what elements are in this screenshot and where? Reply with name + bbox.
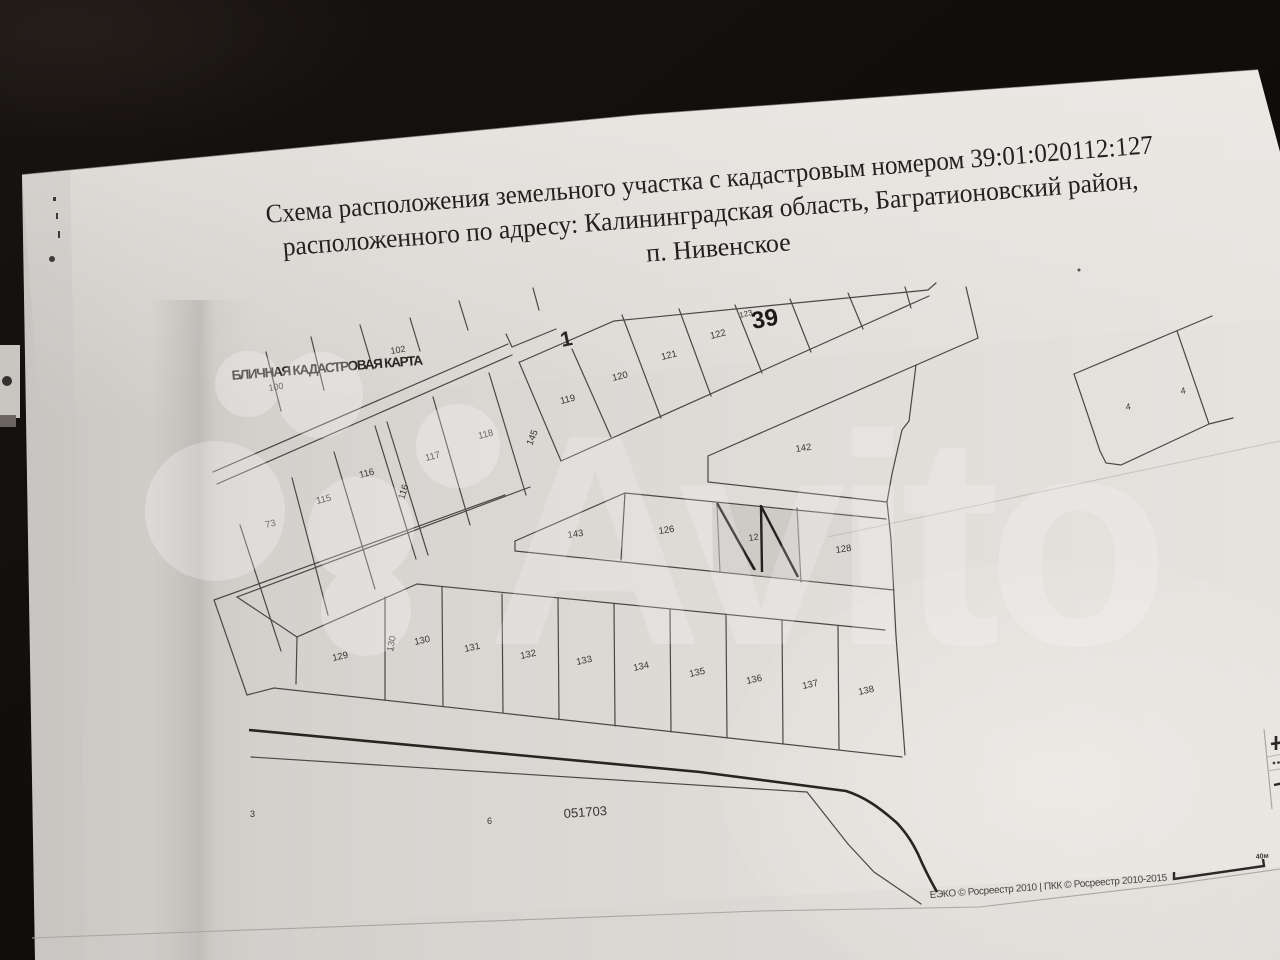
svg-text:39: 39 — [749, 304, 780, 335]
svg-text:6: 6 — [487, 816, 492, 826]
svg-text:Avito: Avito — [487, 372, 1160, 708]
svg-text:051703: 051703 — [563, 803, 607, 821]
svg-text:3: 3 — [250, 809, 255, 819]
